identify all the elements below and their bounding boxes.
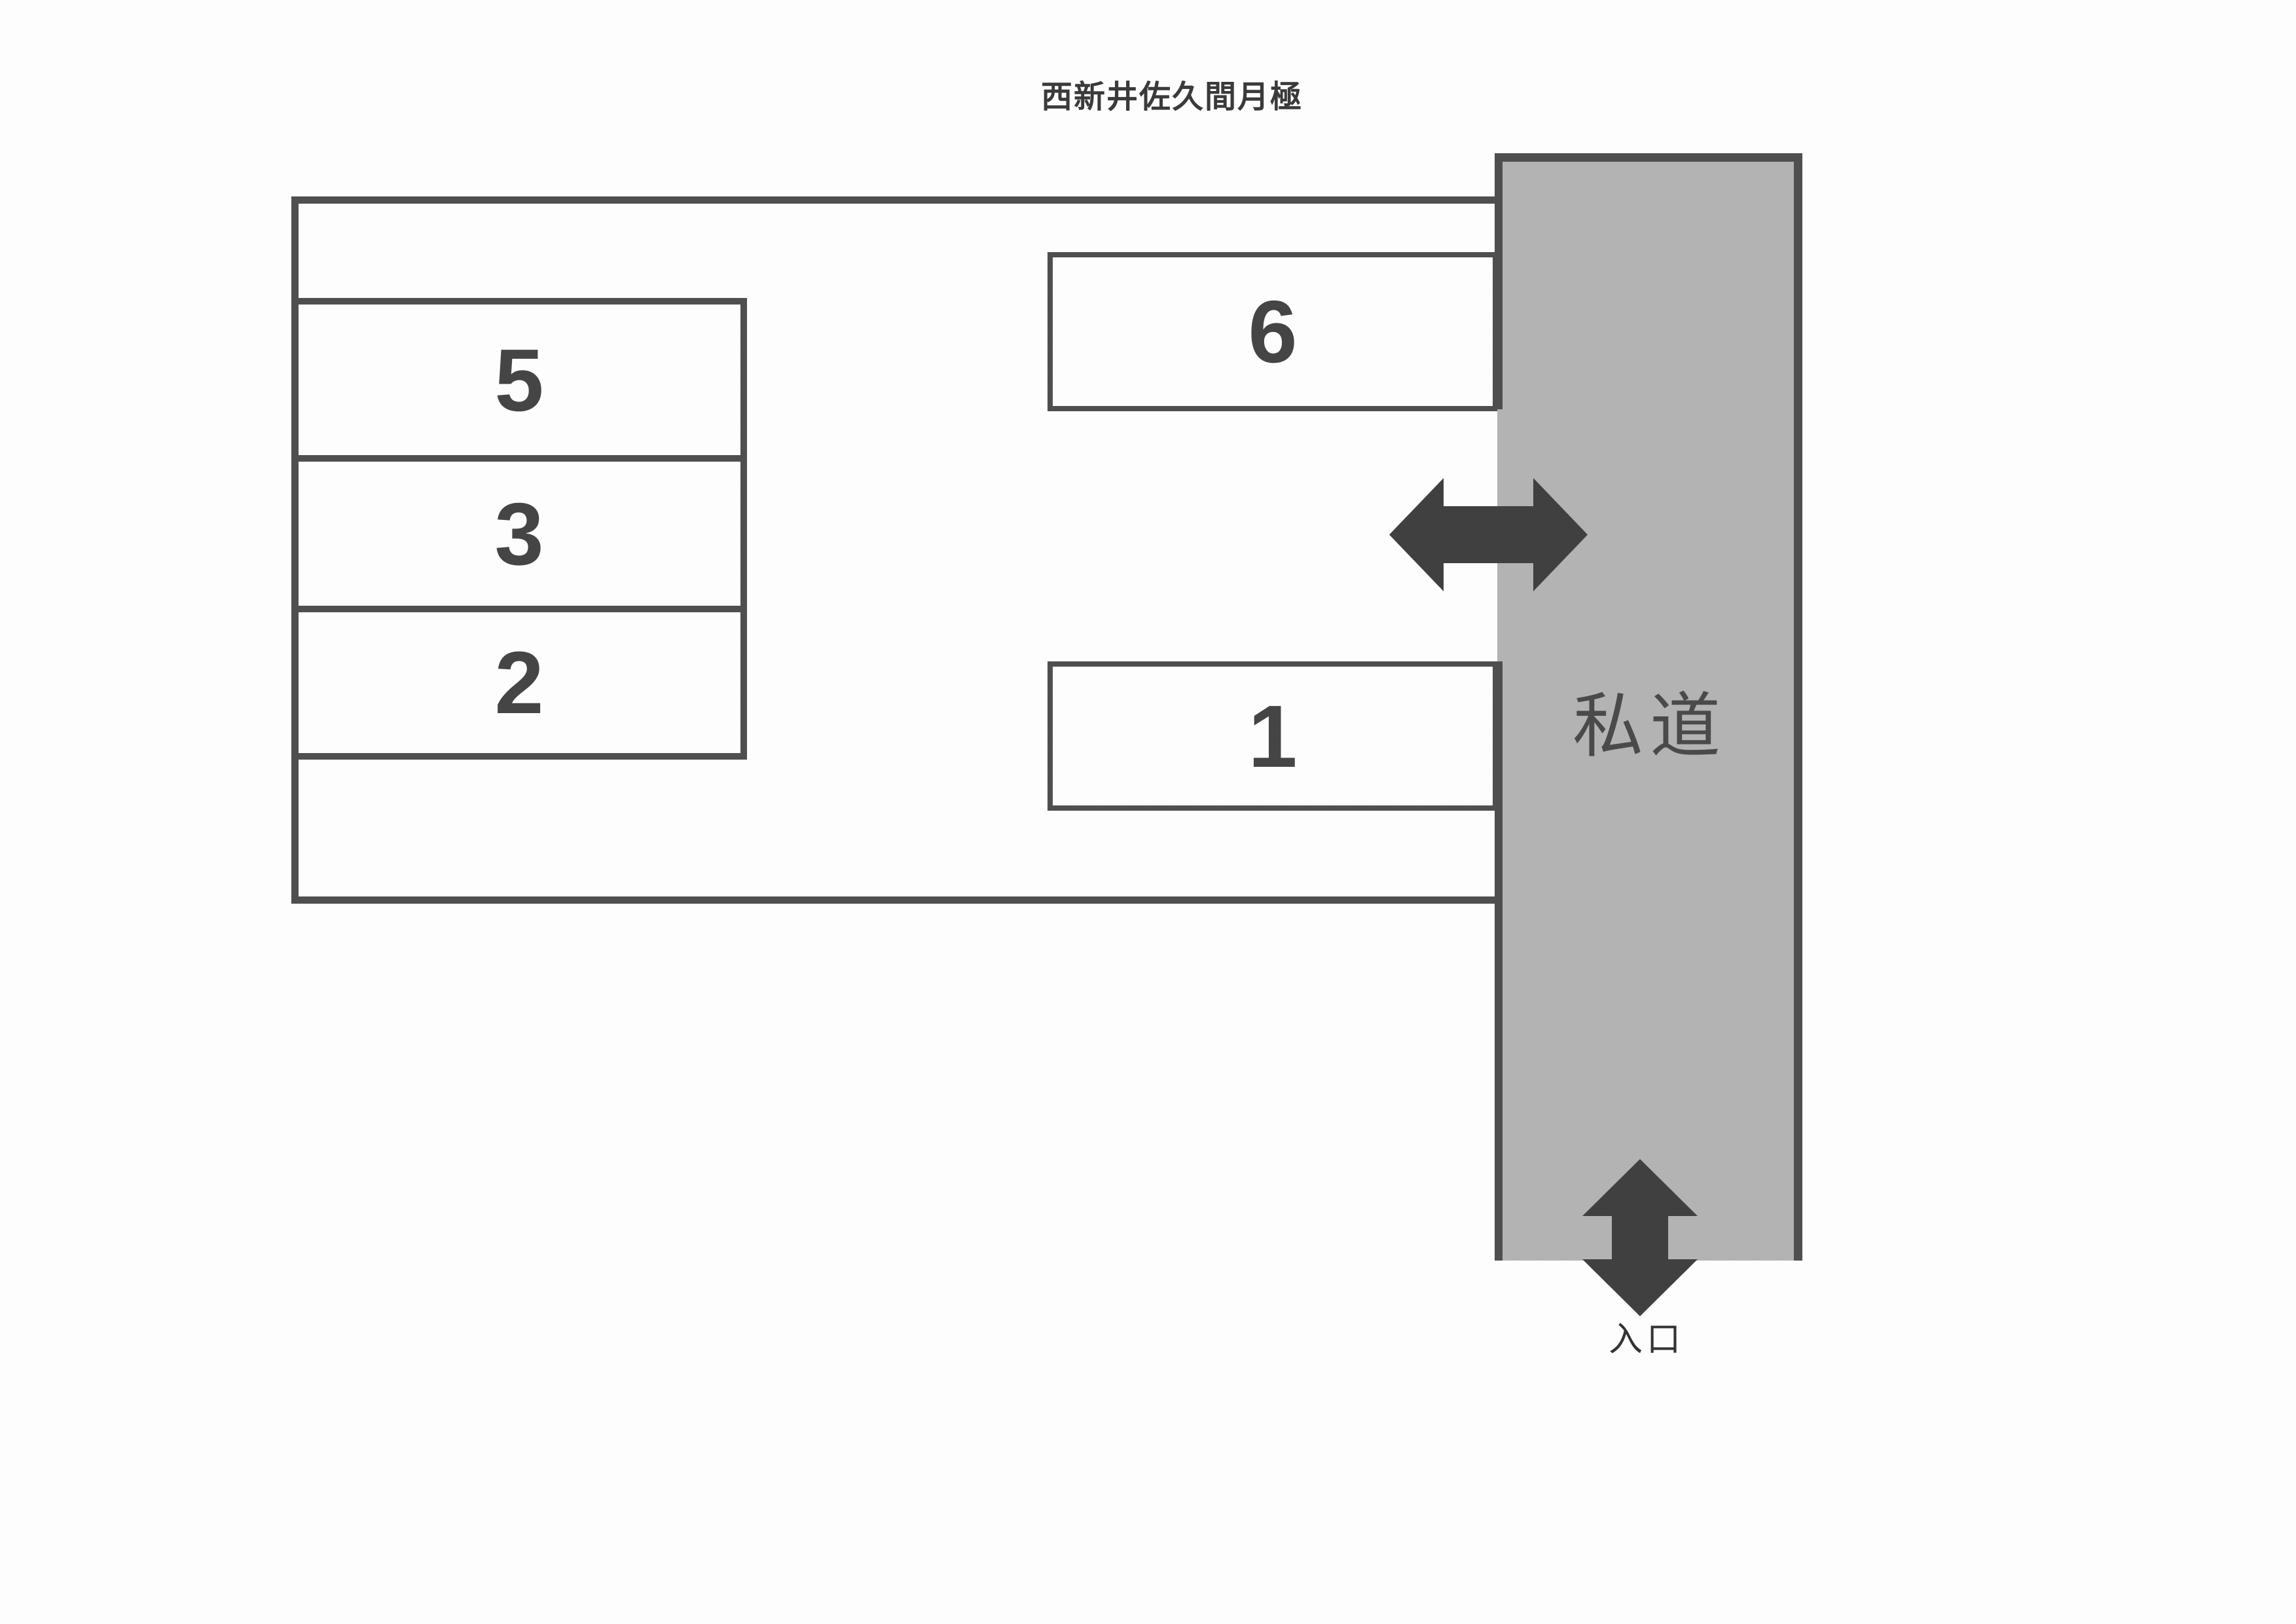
space-number-label: 5 (494, 336, 543, 424)
parking-space-6: 6 (1048, 252, 1498, 411)
double-arrow-horizontal-icon (1389, 478, 1588, 591)
parking-space-2: 2 (291, 606, 747, 760)
parking-space-3: 3 (291, 455, 747, 612)
space-number-label: 3 (494, 490, 543, 578)
parking-map-canvas: 西新井佐久間月極 5 3 2 6 1 私道 入口 (0, 0, 2296, 1624)
parking-space-5: 5 (291, 298, 747, 462)
page-title: 西新井佐久間月極 (910, 71, 1434, 117)
space-number-label: 6 (1248, 287, 1297, 376)
space-number-label: 2 (494, 638, 543, 727)
private-road-label: 私道 (1497, 691, 1802, 762)
parking-space-1: 1 (1048, 661, 1498, 811)
double-arrow-vertical-icon (1582, 1159, 1698, 1316)
entrance-label: 入口 (1548, 1321, 1745, 1359)
private-road-border-upper (1495, 153, 1503, 409)
space-number-label: 1 (1248, 692, 1297, 781)
